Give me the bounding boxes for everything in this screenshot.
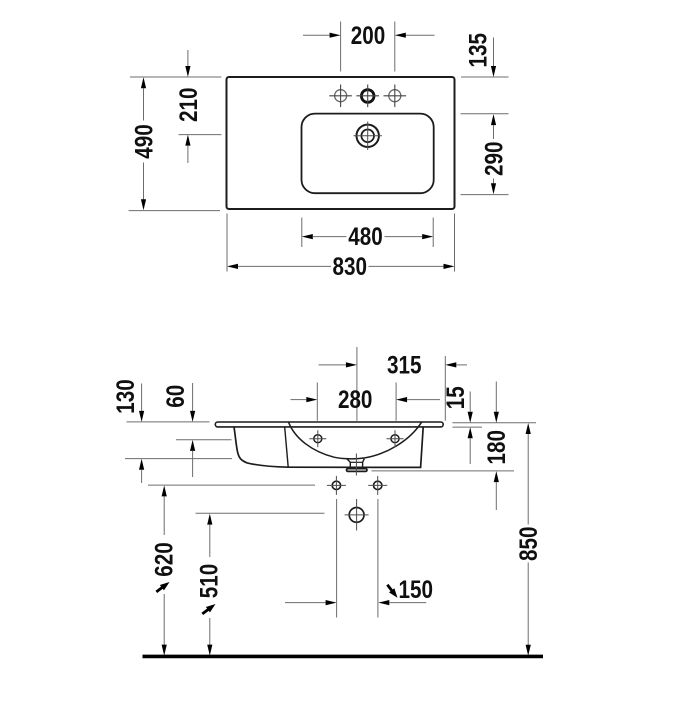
svg-text:130: 130 (112, 379, 140, 414)
svg-text:490: 490 (131, 124, 159, 159)
svg-text:200: 200 (351, 22, 386, 50)
svg-text:180: 180 (483, 430, 511, 465)
svg-text:830: 830 (333, 253, 368, 281)
svg-text:135: 135 (464, 33, 492, 68)
svg-text:290: 290 (480, 142, 508, 177)
svg-text:60: 60 (162, 385, 190, 408)
svg-text:850: 850 (515, 527, 543, 562)
svg-text:510: 510 (195, 564, 223, 599)
svg-text:15: 15 (442, 386, 470, 409)
svg-text:620: 620 (150, 542, 178, 577)
svg-text:480: 480 (348, 223, 383, 251)
svg-text:315: 315 (387, 352, 422, 380)
svg-text:280: 280 (338, 386, 373, 414)
svg-text:210: 210 (175, 88, 203, 123)
svg-text:150: 150 (399, 576, 434, 604)
